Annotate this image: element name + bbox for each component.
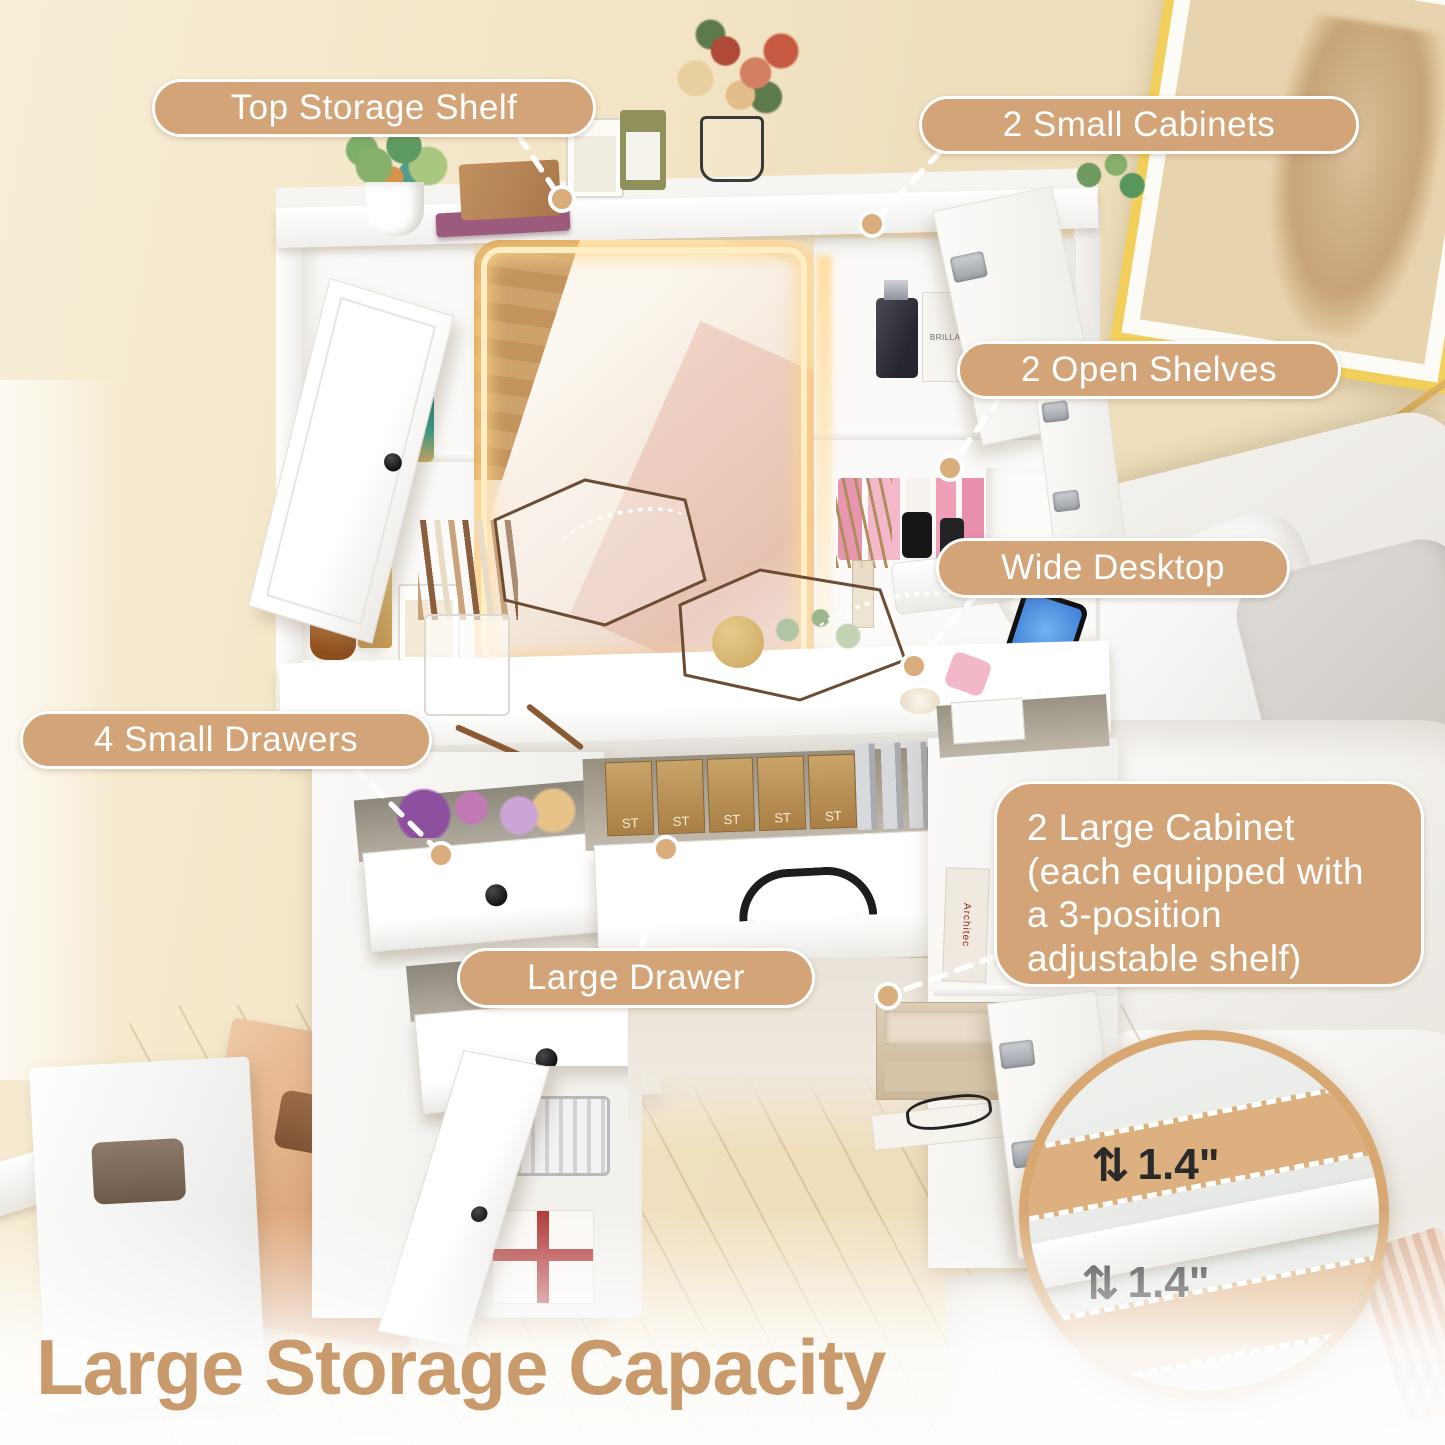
callout-4-small-drawers: 4 Small Drawers xyxy=(20,711,432,769)
shelf-gap-measurement: ⇅ 1.4" xyxy=(1091,1140,1220,1190)
measurement-value: 1.4" xyxy=(1138,1140,1220,1190)
page-title: Large Storage Capacity xyxy=(36,1322,885,1413)
callout-large-drawer: Large Drawer xyxy=(457,948,815,1008)
resize-vertical-icon: ⇅ xyxy=(1091,1142,1130,1188)
vanity-product-infographic: BRILLANT xyxy=(0,0,1445,1445)
callout-2-small-cabinets: 2 Small Cabinets xyxy=(919,96,1359,154)
callout-2-open-shelves: 2 Open Shelves xyxy=(957,341,1341,399)
callout-wide-desktop: Wide Desktop xyxy=(936,538,1290,598)
callout-top-storage-shelf: Top Storage Shelf xyxy=(152,79,596,137)
callout-2-large-cabinet: 2 Large Cabinet (each equipped with a 3-… xyxy=(994,781,1424,987)
